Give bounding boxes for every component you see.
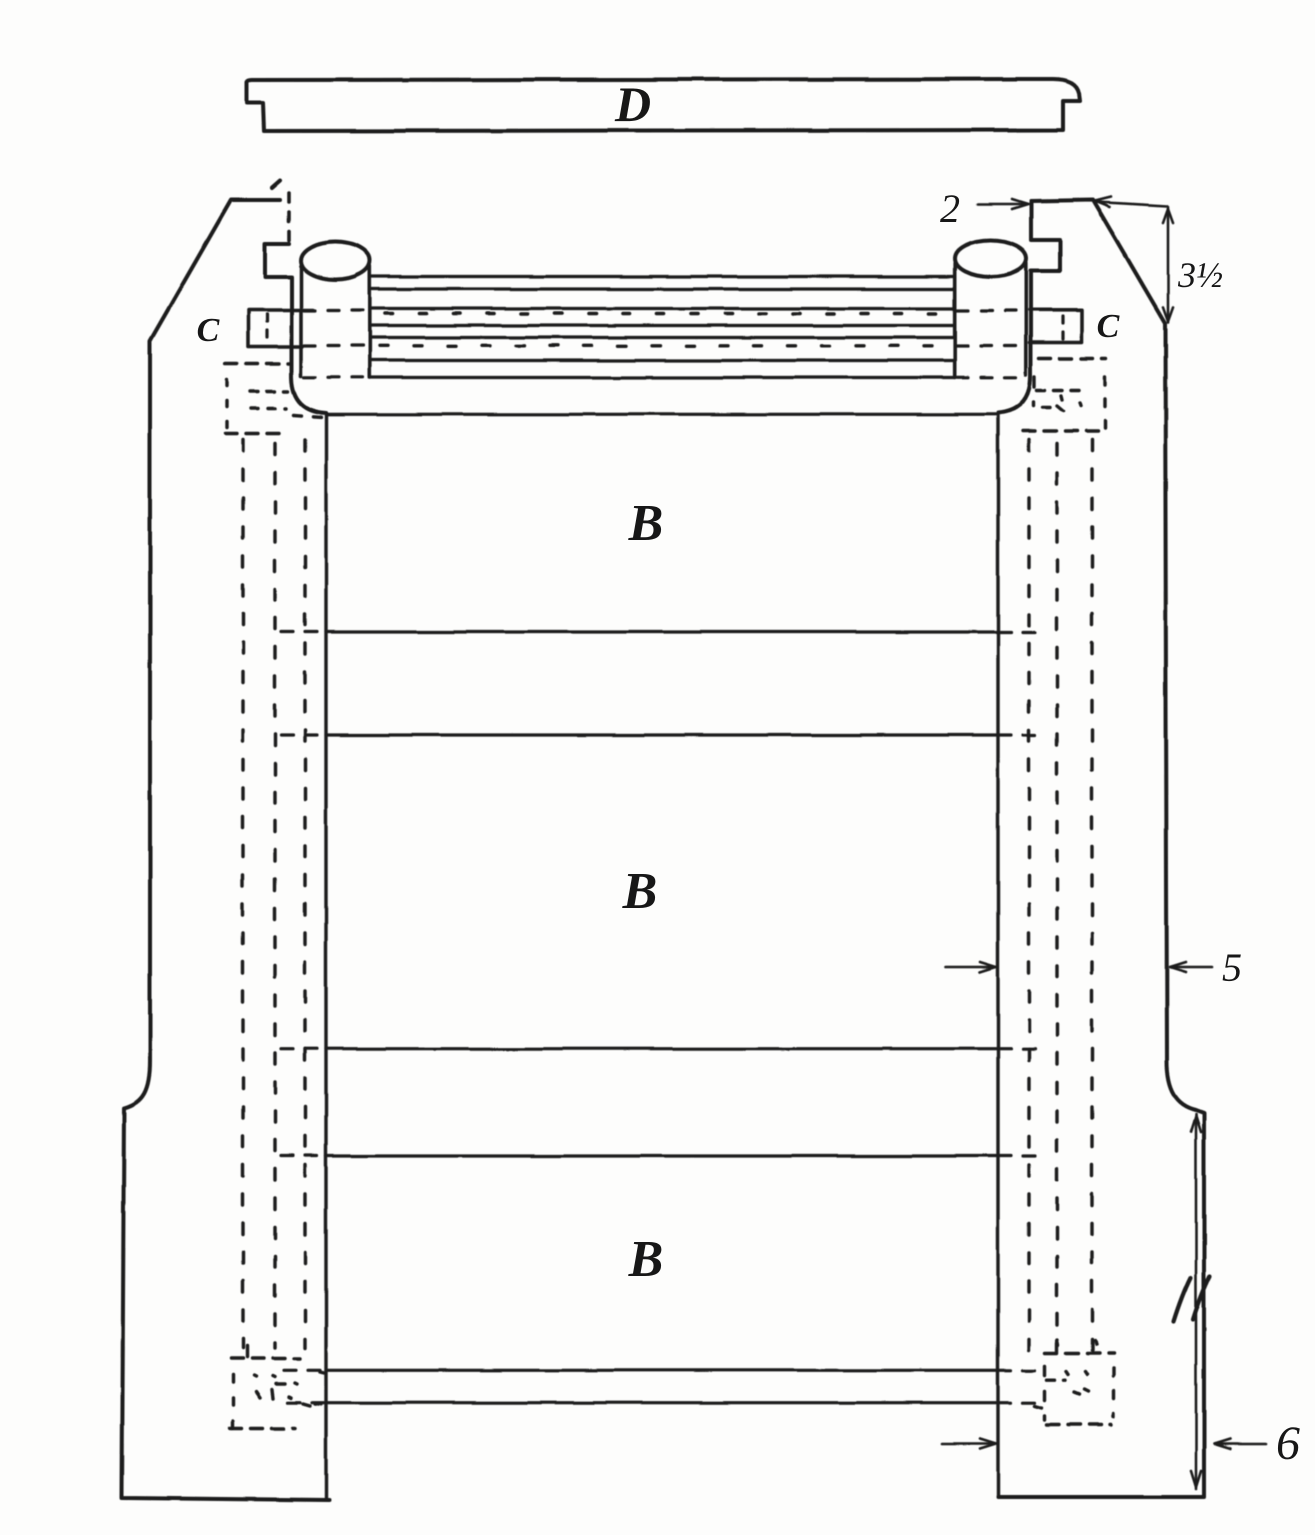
svg-text:C: C (1097, 308, 1120, 345)
svg-text:3½: 3½ (1177, 255, 1223, 295)
svg-text:5: 5 (1222, 945, 1242, 990)
svg-text:B: B (628, 495, 664, 552)
svg-text:D: D (614, 76, 651, 132)
svg-text:6: 6 (1276, 1417, 1300, 1470)
svg-text:B: B (628, 1231, 664, 1288)
svg-text:B: B (622, 863, 658, 920)
svg-text:2: 2 (940, 186, 960, 231)
svg-text:C: C (197, 312, 220, 349)
